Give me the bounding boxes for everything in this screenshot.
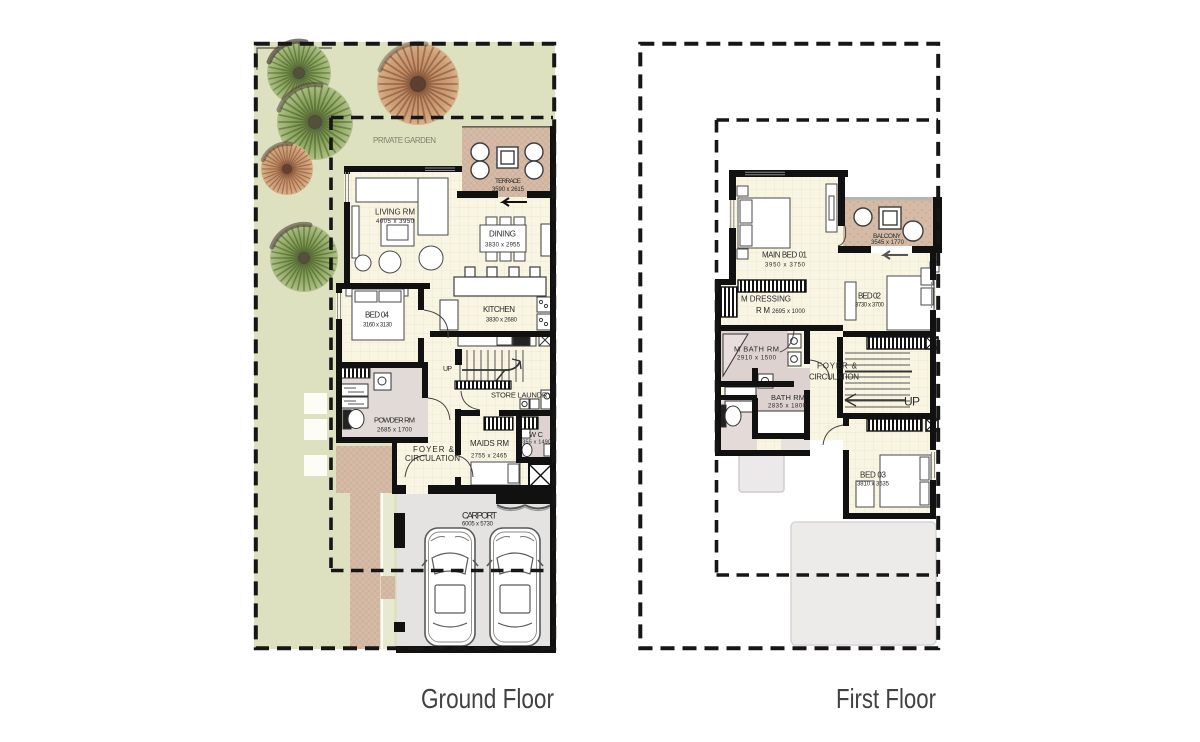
svg-text:RM: RM [756, 306, 770, 315]
svg-text:POWDER RM: POWDER RM [374, 416, 415, 425]
svg-text:3810 x 3535: 3810 x 3535 [857, 482, 890, 488]
svg-text:PRIVATE GARDEN: PRIVATE GARDEN [373, 136, 436, 145]
svg-text:First Floor: First Floor [836, 683, 936, 714]
svg-text:3545 x 1770: 3545 x 1770 [871, 240, 905, 246]
svg-text:DINING: DINING [489, 230, 516, 239]
svg-text:2835 x 1800: 2835 x 1800 [768, 404, 807, 410]
svg-text:2910 x 1500: 2910 x 1500 [737, 356, 777, 362]
svg-text:6005 x 5730: 6005 x 5730 [462, 522, 494, 528]
svg-text:UP: UP [443, 366, 452, 373]
svg-text:3160 x 3130: 3160 x 3130 [363, 323, 393, 329]
svg-text:3950 x 3750: 3950 x 3750 [765, 263, 806, 269]
svg-text:4005 x 3950: 4005 x 3950 [376, 219, 415, 225]
svg-text:CIRCULATION: CIRCULATION [405, 454, 460, 463]
svg-text:BED 03: BED 03 [860, 471, 887, 480]
svg-text:3590 x 2615: 3590 x 2615 [492, 187, 525, 193]
svg-text:TERRACE: TERRACE [495, 178, 522, 185]
svg-text:2695 x 1000: 2695 x 1000 [772, 309, 806, 315]
svg-text:M BATH RM: M BATH RM [734, 345, 779, 354]
svg-text:2755 x 2465: 2755 x 2465 [471, 454, 508, 460]
svg-text:KITCHEN: KITCHEN [483, 305, 515, 314]
svg-text:Ground Floor: Ground Floor [421, 683, 554, 714]
svg-text:3730 x 3700: 3730 x 3700 [855, 303, 885, 309]
svg-text:MAIDS RM: MAIDS RM [470, 439, 509, 448]
svg-text:STORE LAUNDRY: STORE LAUNDRY [491, 391, 552, 400]
svg-text:BED 04: BED 04 [365, 311, 390, 320]
svg-text:CIRCULATION: CIRCULATION [809, 373, 859, 382]
svg-text:BATH RM: BATH RM [771, 393, 805, 402]
svg-text:3830 x 2680: 3830 x 2680 [486, 318, 518, 324]
svg-text:UP: UP [904, 395, 920, 409]
svg-text:FOYER &: FOYER & [413, 445, 455, 454]
svg-text:2355 x 1490: 2355 x 1490 [519, 440, 551, 446]
svg-text:BALCONY: BALCONY [873, 233, 902, 240]
svg-text:MAIN BED 01: MAIN BED 01 [762, 251, 808, 260]
svg-text:BED 02: BED 02 [858, 292, 882, 301]
svg-text:CARPORT: CARPORT [462, 511, 498, 521]
svg-text:M DRESSING: M DRESSING [741, 295, 791, 304]
svg-text:3830 x 2955: 3830 x 2955 [485, 243, 521, 249]
svg-text:FOYER &: FOYER & [817, 362, 858, 371]
svg-text:LIVING RM: LIVING RM [375, 208, 415, 217]
svg-text:2685 x 1700: 2685 x 1700 [377, 428, 413, 434]
